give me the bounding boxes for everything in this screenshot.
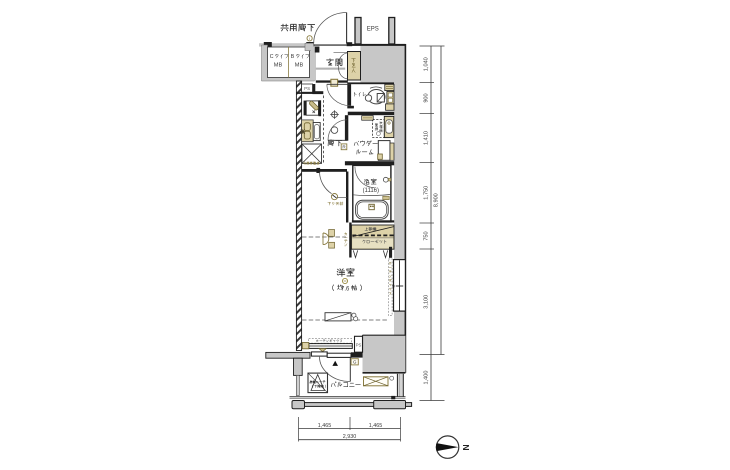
svg-text:PS: PS bbox=[356, 343, 362, 348]
svg-text:1,410: 1,410 bbox=[423, 131, 429, 145]
svg-text:3,100: 3,100 bbox=[423, 295, 429, 309]
svg-text:750: 750 bbox=[423, 231, 429, 240]
svg-text:C: C bbox=[270, 54, 274, 60]
svg-text:N: N bbox=[461, 444, 471, 450]
svg-text:2,930: 2,930 bbox=[343, 434, 357, 440]
svg-text:7.6: 7.6 bbox=[341, 287, 350, 293]
svg-text:1,465: 1,465 bbox=[318, 423, 332, 429]
svg-text:1,465: 1,465 bbox=[369, 423, 383, 429]
svg-text:(1116): (1116) bbox=[363, 188, 379, 194]
svg-text:1,400: 1,400 bbox=[423, 371, 429, 385]
svg-text:1,750: 1,750 bbox=[423, 186, 429, 200]
svg-text:EPS: EPS bbox=[367, 26, 379, 32]
svg-text:G: G bbox=[353, 360, 357, 365]
svg-text:8,900: 8,900 bbox=[434, 193, 440, 207]
svg-text:MB: MB bbox=[274, 63, 283, 69]
svg-text:900: 900 bbox=[423, 93, 429, 102]
svg-text:I: I bbox=[309, 36, 310, 41]
svg-text:MB: MB bbox=[295, 63, 304, 69]
svg-text:PS: PS bbox=[304, 86, 310, 91]
svg-text:1,040: 1,040 bbox=[423, 57, 429, 71]
svg-text:B: B bbox=[291, 54, 295, 60]
